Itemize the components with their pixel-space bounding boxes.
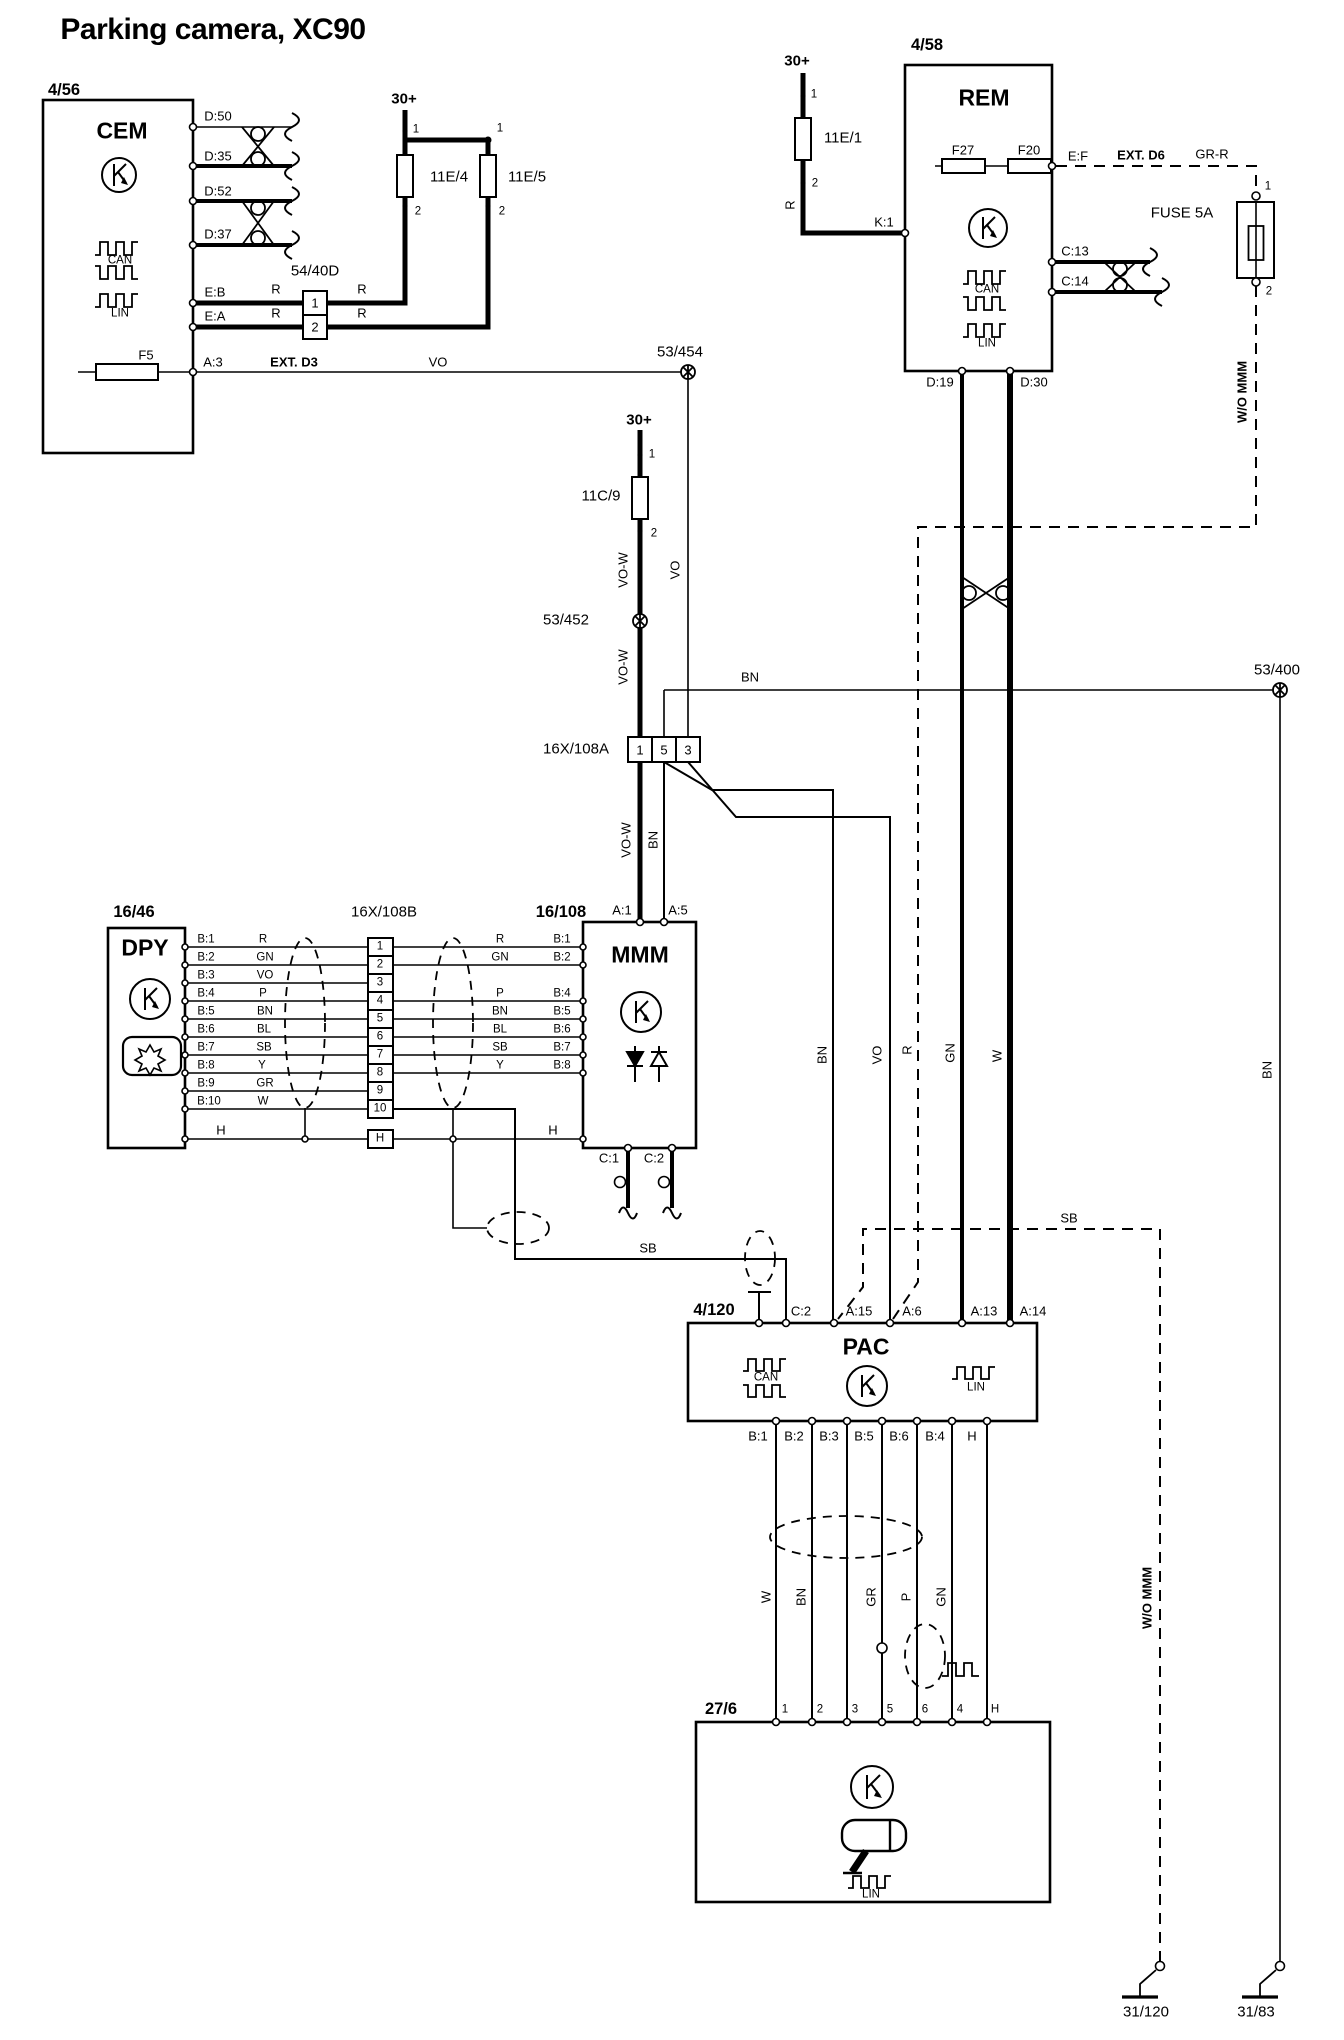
rem-lin-label: LIN bbox=[978, 338, 996, 350]
dpy-pin-b4: B:4 bbox=[197, 988, 214, 1000]
camera-lin-label: LIN bbox=[862, 1889, 880, 1901]
dpy-wire-bn: BN bbox=[257, 1006, 273, 1018]
connector-16x108a-pin-3: 3 bbox=[684, 744, 691, 757]
shield-dpy-right bbox=[433, 938, 473, 1108]
ext-d6-label: EXT. D6 bbox=[1117, 149, 1165, 162]
cem-pin-d35: D:35 bbox=[204, 150, 231, 163]
page-title: Parking camera, XC90 bbox=[60, 15, 365, 45]
cem-lin-label: LIN bbox=[111, 308, 129, 320]
wire-color-r-5: R bbox=[784, 200, 797, 209]
dpy-pin-b2: B:2 bbox=[197, 952, 214, 964]
lin-wave-icon bbox=[942, 1663, 979, 1676]
camera-box bbox=[696, 1722, 1050, 1902]
wire-color-bn-2: BN bbox=[647, 831, 660, 849]
mmm-name: MMM bbox=[611, 944, 668, 967]
cem-pin-d37: D:37 bbox=[204, 228, 231, 241]
pac-pin-b2: B:2 bbox=[784, 1430, 804, 1443]
wire-11e1-k1 bbox=[803, 73, 905, 233]
loom-camera bbox=[905, 1624, 945, 1688]
wire-color-p-1: P bbox=[900, 1593, 913, 1602]
wire-color-w-2: W bbox=[760, 1591, 773, 1603]
wire-color-sb-2: SB bbox=[1060, 1212, 1077, 1225]
wire-color-vow-3: VO-W bbox=[620, 822, 633, 857]
rem-pin-ef: E:F bbox=[1068, 150, 1088, 163]
splice-53-454-label: 53/454 bbox=[657, 345, 703, 360]
mmm-wire-sb: SB bbox=[492, 1042, 507, 1054]
mmm-pin-b8: B:8 bbox=[553, 1060, 570, 1072]
mmm-wire-bl: BL bbox=[493, 1024, 507, 1036]
connector-16x108a-pin-5: 5 bbox=[660, 744, 667, 757]
rem-pin-c14: C:14 bbox=[1061, 275, 1088, 288]
cem-pin-eb: E:B bbox=[205, 286, 226, 299]
cem-pin-d50: D:50 bbox=[204, 110, 231, 123]
wire-color-vo-3: VO bbox=[871, 1046, 884, 1065]
wire-color-vo-1: VO bbox=[429, 356, 448, 369]
dpy-wire-gr: GR bbox=[256, 1078, 273, 1090]
fuse-11e5-pin2: 2 bbox=[499, 206, 505, 218]
fuse-11e4-pin1: 1 bbox=[413, 124, 419, 136]
dpy-wire-bl: BL bbox=[257, 1024, 271, 1036]
mmm-pin-a5: A:5 bbox=[668, 904, 688, 917]
dpy-pin-b8: B:8 bbox=[197, 1060, 214, 1072]
pin-circles bbox=[182, 124, 1285, 1971]
pac-pin-h: H bbox=[967, 1430, 976, 1443]
ground-31-120-label: 31/120 bbox=[1123, 2005, 1169, 2020]
dpy-pin-b9: B:9 bbox=[197, 1078, 214, 1090]
twist-d52-d37 bbox=[242, 201, 274, 245]
wire-color-w-1: W bbox=[991, 1050, 1004, 1062]
pac-pin-b4: B:4 bbox=[925, 1430, 945, 1443]
mmm-pin-b1: B:1 bbox=[553, 934, 570, 946]
connector-16x108a-id: 16X/108A bbox=[543, 742, 609, 757]
wires-dashed bbox=[838, 166, 1256, 1962]
fuse-11c9-symbol bbox=[632, 477, 648, 519]
mmm-pin-b7: B:7 bbox=[553, 1042, 570, 1054]
rem-box bbox=[905, 65, 1052, 371]
mmm-pin-b5: B:5 bbox=[553, 1006, 570, 1018]
pac-pin-a13: A:13 bbox=[971, 1305, 998, 1318]
connector-16x108b-pin-10: 10 bbox=[374, 1103, 387, 1115]
womm-label-2: W/O MMM bbox=[1141, 1567, 1154, 1629]
mmm-c1-ring bbox=[615, 1177, 626, 1188]
connector-54-40d-pin-2: 2 bbox=[311, 321, 318, 334]
ground-31-120-pin bbox=[1156, 1962, 1165, 1971]
ground-31-83-pin bbox=[1276, 1962, 1285, 1971]
wiring-diagram: Parking camera, XC904/56CEMCANLINF5D:50D… bbox=[0, 0, 1344, 2040]
splice-53-400 bbox=[1273, 683, 1287, 697]
fuse-11e4-pin2: 2 bbox=[415, 206, 421, 218]
feed-30-2: 30+ bbox=[784, 54, 809, 69]
connector-16x108a-pin-1: 1 bbox=[636, 744, 643, 757]
rem-id: 4/58 bbox=[911, 37, 943, 54]
cem-box bbox=[43, 100, 193, 453]
camera-id: 27/6 bbox=[705, 1701, 737, 1718]
wire-color-bn-1: BN bbox=[741, 671, 759, 684]
fuse-11e4-symbol bbox=[397, 155, 413, 197]
ground-31-83-label: 31/83 bbox=[1237, 2005, 1275, 2020]
rem-name: REM bbox=[958, 87, 1009, 110]
wire-color-r-3: R bbox=[357, 283, 366, 296]
wire-color-bn-4: BN bbox=[1261, 1061, 1274, 1079]
splice-53-452 bbox=[633, 614, 647, 628]
dpy-pin-b5: B:5 bbox=[197, 1006, 214, 1018]
pac-pin-b3: B:3 bbox=[819, 1430, 839, 1443]
mmm-pin-c2: C:2 bbox=[644, 1152, 664, 1165]
fuse-11c9-pin2: 2 bbox=[651, 528, 657, 540]
wire-color-gn-2: GN bbox=[935, 1587, 948, 1607]
fuse-11e5-pin1: 1 bbox=[497, 123, 503, 135]
cem-pin-d52: D:52 bbox=[204, 185, 231, 198]
wire-color-vow-1: VO-W bbox=[617, 552, 630, 587]
fuse-5a-pin1: 1 bbox=[1265, 181, 1271, 193]
fuse-11c9-pin1: 1 bbox=[649, 449, 655, 461]
mmm-wire-y: Y bbox=[496, 1060, 504, 1072]
cem-pin-ea: E:A bbox=[205, 310, 226, 323]
fuse-11e5-symbol bbox=[480, 155, 496, 197]
splice-53-400-label: 53/400 bbox=[1254, 663, 1300, 678]
dpy-wire-gn: GN bbox=[256, 952, 273, 964]
dpy-id: 16/46 bbox=[113, 904, 154, 921]
fuse-11e1-label: 11E/1 bbox=[824, 131, 862, 146]
connector-16x108b-id: 16X/108B bbox=[351, 905, 417, 920]
twist-gn-w bbox=[962, 577, 1010, 609]
fuse-11e1-pin2: 2 bbox=[812, 178, 818, 190]
connector-16x108b-pin-9: 9 bbox=[377, 1085, 383, 1097]
mmm-pin-b4: B:4 bbox=[553, 988, 570, 1000]
rem-fuse-f20: F20 bbox=[1018, 144, 1040, 157]
connector-16x108b-pin-1: 1 bbox=[377, 941, 383, 953]
dpy-wire-sb: SB bbox=[256, 1042, 271, 1054]
mmm-c2-ring bbox=[659, 1177, 670, 1188]
cem-fuse-f5: F5 bbox=[138, 349, 153, 362]
mmm-pin-c1: C:1 bbox=[599, 1152, 619, 1165]
feed-30-3: 30+ bbox=[626, 413, 651, 428]
wire-color-gn-1: GN bbox=[944, 1043, 957, 1063]
pac-pin-a6: A:6 bbox=[902, 1305, 922, 1318]
fuse-11e1-pin1: 1 bbox=[811, 89, 817, 101]
camera-pin-6: 6 bbox=[922, 1704, 928, 1716]
pac-pin-b6: B:6 bbox=[889, 1430, 909, 1443]
wire-color-bn-5: BN bbox=[795, 1588, 808, 1606]
splice-53-454 bbox=[681, 365, 695, 379]
mmm-wire-p: P bbox=[496, 988, 504, 1000]
wire-vo-a6 bbox=[688, 762, 890, 1323]
connector-16x108b-pin-7: 7 bbox=[377, 1049, 383, 1061]
dpy-pin-b7: B:7 bbox=[197, 1042, 214, 1054]
pac-can-label: CAN bbox=[754, 1372, 778, 1384]
fuse-5a-label: FUSE 5A bbox=[1151, 206, 1214, 221]
pac-pin-a14: A:14 bbox=[1020, 1305, 1047, 1318]
shield-ring-b5 bbox=[877, 1643, 887, 1653]
wire-color-sb-1: SB bbox=[639, 1242, 656, 1255]
connector-54-40d-id: 54/40D bbox=[291, 264, 339, 279]
mmm-h-label: H bbox=[548, 1124, 557, 1137]
fuse-11e5-label: 11E/5 bbox=[508, 170, 546, 185]
rem-pin-d19: D:19 bbox=[926, 376, 953, 389]
mmm-pin-b2: B:2 bbox=[553, 952, 570, 964]
dpy-pin-b6: B:6 bbox=[197, 1024, 214, 1036]
connector-54-40d-pin-1: 1 bbox=[311, 297, 318, 310]
mmm-wire-r: R bbox=[496, 934, 504, 946]
dpy-wire-vo: VO bbox=[257, 970, 274, 982]
wires-thick5 bbox=[193, 73, 905, 922]
pac-pin-b1: B:1 bbox=[748, 1430, 768, 1443]
connector-16x108b-pin-2: 2 bbox=[377, 959, 383, 971]
fuse-11e1-symbol bbox=[795, 118, 811, 160]
dpy-wire-r: R bbox=[259, 934, 267, 946]
splice-53-452-label: 53/452 bbox=[543, 613, 589, 628]
camera-pin-5: 5 bbox=[887, 1704, 893, 1716]
wire-color-vow-2: VO-W bbox=[617, 649, 630, 684]
pac-name: PAC bbox=[843, 1336, 890, 1359]
dpy-pin-b1: B:1 bbox=[197, 934, 214, 946]
mmm-wire-bn: BN bbox=[492, 1006, 508, 1018]
wire-color-r-4: R bbox=[357, 307, 366, 320]
pac-pin-a15: A:15 bbox=[846, 1305, 873, 1318]
dpy-pin-b3: B:3 bbox=[197, 970, 214, 982]
camera-pin-2: 2 bbox=[817, 1704, 823, 1716]
pac-pin-b5: B:5 bbox=[854, 1430, 874, 1443]
shield-dpy-left bbox=[285, 938, 325, 1108]
ground-31-83-symbol bbox=[1260, 1970, 1276, 1996]
dpy-wire-y: Y bbox=[258, 1060, 266, 1072]
connector-16x108b-pin-5: 5 bbox=[377, 1013, 383, 1025]
mmm-pin-b6: B:6 bbox=[553, 1024, 570, 1036]
twist-c13-c14 bbox=[1104, 262, 1136, 292]
shield-sb-1 bbox=[487, 1212, 549, 1244]
womm-label-1: W/O MMM bbox=[1236, 361, 1249, 423]
mmm-c1-break bbox=[619, 1208, 637, 1219]
rem-pin-c13: C:13 bbox=[1061, 245, 1088, 258]
wire-r-womm-dashed bbox=[893, 286, 1256, 1319]
connector-16x108b-pin-6: 6 bbox=[377, 1031, 383, 1043]
feed-30-1: 30+ bbox=[391, 92, 416, 107]
cem-can-label: CAN bbox=[108, 255, 132, 267]
wire-color-r-2: R bbox=[271, 307, 280, 320]
fuse-5a-pin2: 2 bbox=[1266, 286, 1272, 298]
cem-id: 4/56 bbox=[48, 82, 80, 99]
cem-pin-a3: A:3 bbox=[203, 356, 223, 369]
mmm-c2-break bbox=[663, 1208, 681, 1219]
wire-vo-ext-d3 bbox=[193, 372, 688, 737]
pac-id: 4/120 bbox=[693, 1302, 734, 1319]
wire-color-grr: GR-R bbox=[1195, 148, 1228, 161]
connector-16x108b-pin-h: H bbox=[376, 1133, 384, 1145]
dpy-h-label: H bbox=[216, 1124, 225, 1137]
fuse-11e4-label: 11E/4 bbox=[430, 170, 468, 185]
dpy-wire-w: W bbox=[258, 1096, 269, 1108]
dpy-name: DPY bbox=[121, 937, 168, 960]
pac-lin-label: LIN bbox=[967, 1382, 985, 1394]
dpy-wire-p: P bbox=[259, 988, 267, 1000]
connector-16x108b-pin-8: 8 bbox=[377, 1067, 383, 1079]
camera-pin-4: 4 bbox=[957, 1704, 963, 1716]
fuse-f27-symbol bbox=[942, 159, 985, 173]
rem-pin-d30: D:30 bbox=[1020, 376, 1047, 389]
connector-16x108b-pin-3: 3 bbox=[377, 977, 383, 989]
junction-dots bbox=[402, 93, 805, 533]
wire-color-r-1: R bbox=[271, 283, 280, 296]
pac-pin-c2: C:2 bbox=[791, 1305, 811, 1318]
ext-d3-label: EXT. D3 bbox=[270, 356, 318, 369]
camera-pin-3: 3 bbox=[852, 1704, 858, 1716]
mmm-pin-a1: A:1 bbox=[612, 904, 632, 917]
connector-16x108b-pin-4: 4 bbox=[377, 995, 383, 1007]
shield-drain-right bbox=[453, 1108, 487, 1228]
rem-fuse-f27: F27 bbox=[952, 144, 974, 157]
wire-color-r-6: R bbox=[901, 1045, 914, 1054]
wire-grr-dashed bbox=[1056, 166, 1256, 192]
fuse-f20-symbol bbox=[1008, 159, 1051, 173]
mmm-wire-gn: GN bbox=[491, 952, 508, 964]
diagram-canvas bbox=[0, 0, 1344, 2040]
wire-color-bn-3: BN bbox=[816, 1046, 829, 1064]
fuse-11c9-label: 11C/9 bbox=[582, 489, 621, 504]
mmm-id: 16/108 bbox=[536, 904, 586, 921]
cem-name: CEM bbox=[96, 120, 147, 143]
wire-color-gr-1: GR bbox=[865, 1587, 878, 1607]
wire-color-vo-2: VO bbox=[669, 561, 682, 580]
dpy-pin-b10: B:10 bbox=[197, 1096, 221, 1108]
twist-d50-d35 bbox=[242, 127, 274, 166]
rem-can-label: CAN bbox=[975, 284, 999, 296]
rem-pin-k1: K:1 bbox=[874, 216, 894, 229]
camera-pin-1: 1 bbox=[782, 1704, 788, 1716]
camera-pin-h: H bbox=[991, 1704, 999, 1716]
ground-31-120-symbol bbox=[1140, 1970, 1156, 1996]
bus-waveform-icons bbox=[95, 242, 1006, 1888]
pac-shield-drain bbox=[748, 1292, 771, 1323]
fuse-f5-symbol bbox=[96, 364, 158, 380]
